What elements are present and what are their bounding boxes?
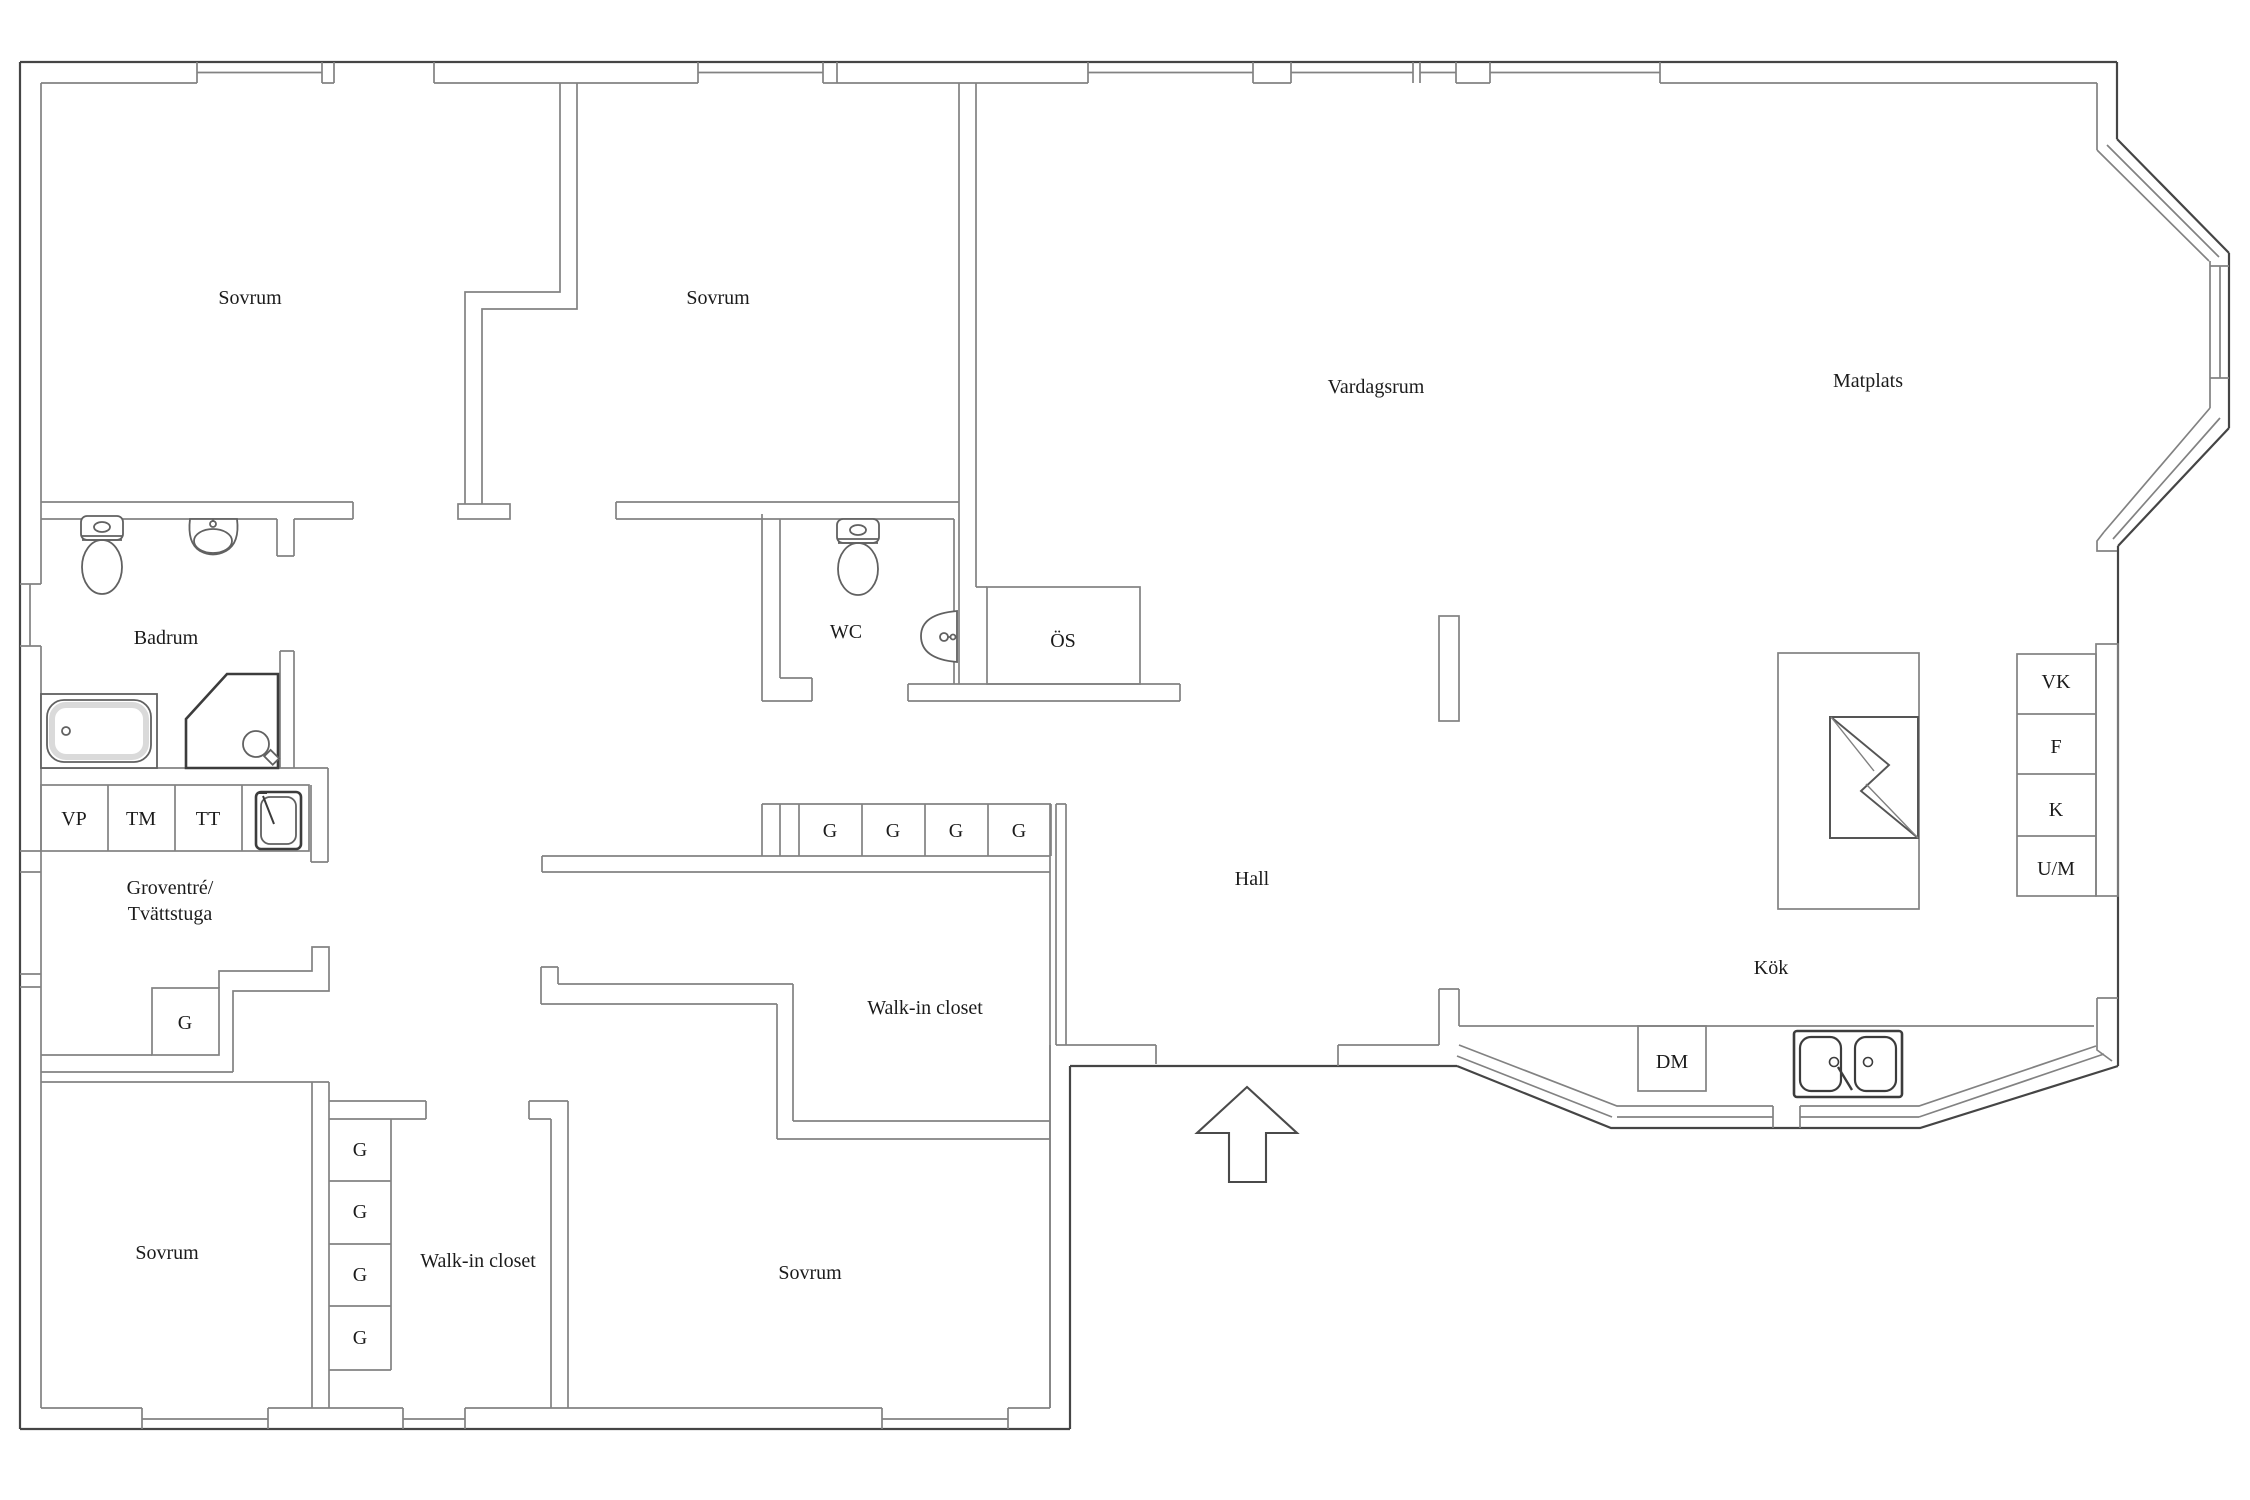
svg-text:Sovrum: Sovrum bbox=[686, 287, 750, 309]
svg-text:Sovrum: Sovrum bbox=[135, 1242, 199, 1264]
svg-text:F: F bbox=[2050, 736, 2061, 758]
svg-text:G: G bbox=[353, 1264, 367, 1286]
svg-text:ÖS: ÖS bbox=[1050, 629, 1076, 652]
svg-text:Badrum: Badrum bbox=[134, 627, 199, 649]
svg-text:U/M: U/M bbox=[2037, 858, 2075, 880]
svg-text:DM: DM bbox=[1656, 1051, 1688, 1073]
svg-text:Tvättstuga: Tvättstuga bbox=[128, 903, 213, 925]
svg-text:TT: TT bbox=[196, 808, 220, 830]
svg-text:G: G bbox=[353, 1201, 367, 1223]
svg-text:G: G bbox=[949, 820, 963, 842]
svg-text:Hall: Hall bbox=[1235, 868, 1270, 890]
svg-text:WC: WC bbox=[830, 621, 862, 643]
svg-text:VP: VP bbox=[61, 808, 87, 830]
svg-text:Kök: Kök bbox=[1754, 957, 1788, 979]
svg-text:Matplats: Matplats bbox=[1833, 370, 1903, 392]
svg-text:G: G bbox=[353, 1327, 367, 1349]
svg-text:G: G bbox=[1012, 820, 1026, 842]
svg-text:Sovrum: Sovrum bbox=[778, 1262, 842, 1284]
svg-text:Walk-in closet: Walk-in closet bbox=[867, 997, 983, 1019]
svg-text:G: G bbox=[178, 1012, 192, 1034]
svg-text:G: G bbox=[353, 1139, 367, 1161]
svg-text:K: K bbox=[2049, 799, 2064, 821]
svg-text:Vardagsrum: Vardagsrum bbox=[1328, 376, 1425, 398]
svg-text:TM: TM bbox=[126, 808, 156, 830]
svg-text:G: G bbox=[823, 820, 837, 842]
svg-text:VK: VK bbox=[2042, 671, 2071, 693]
svg-text:G: G bbox=[886, 820, 900, 842]
svg-text:Groventré/: Groventré/ bbox=[127, 877, 214, 899]
svg-text:Sovrum: Sovrum bbox=[218, 287, 282, 309]
svg-text:Walk-in closet: Walk-in closet bbox=[420, 1250, 536, 1272]
